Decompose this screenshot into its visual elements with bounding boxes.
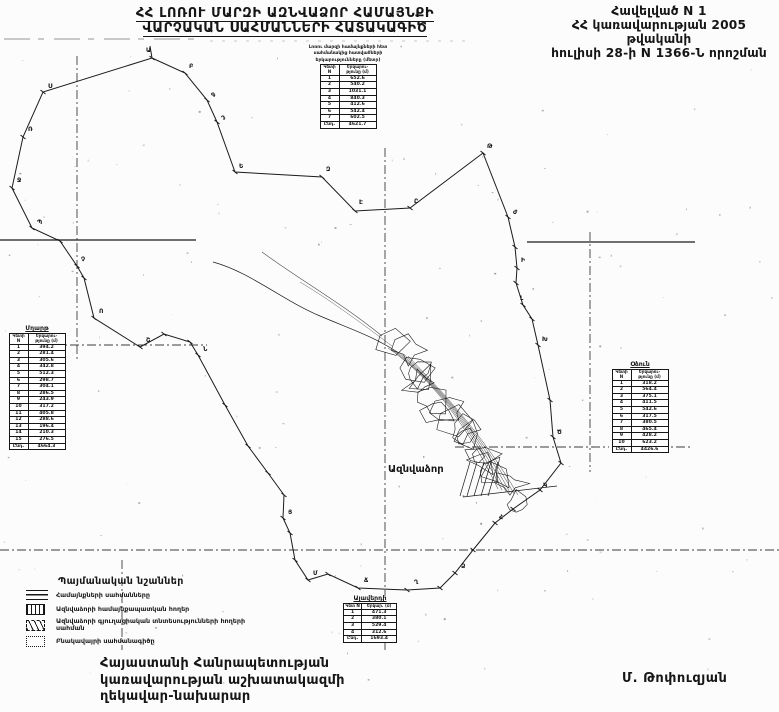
authority-line2: կառավարության աշխատակազմի [100, 673, 345, 690]
cell: 471.3 [362, 609, 397, 616]
administrative-boundary [10, 46, 564, 592]
table-row: 4312.6 [344, 629, 397, 636]
cell: Ընդ. [612, 446, 631, 453]
table-row: 5512.3 [9, 370, 65, 377]
boundary-point-label: Լ [520, 295, 524, 302]
table-row: 31031.1 [320, 89, 376, 96]
table-total-row: Ընդ.4426.6 [612, 446, 668, 453]
cell: 5 [9, 370, 28, 377]
legend-item: Համայնքների սահմանները [26, 590, 256, 600]
border-length-table-bottom: ԱլավերդիԿետ NԵրկար. (մ)1471.32380.13529.… [343, 596, 397, 643]
legend-item: Ազնվաձորի գյուղացիական տնտեսությունների … [26, 618, 256, 632]
cell: 11 [9, 410, 28, 417]
cell: Ընդ. [9, 443, 28, 450]
cell: 10 [9, 403, 28, 410]
border-length-table-left: ՄղարթԿետի NԵրկարու- թյունը (մ)1394.22281… [8, 326, 66, 450]
cell: 304.1 [28, 384, 65, 391]
dotted-box-icon [26, 636, 50, 647]
legend-item: Բնակավայրի սահմանագիծը [26, 636, 256, 647]
cell: 8 [612, 426, 631, 433]
table-row: 4342.8 [9, 364, 65, 371]
cell: 8 [9, 390, 28, 397]
cell: 4 [320, 95, 339, 102]
boundary-point-label: Դ [221, 115, 226, 122]
cell: 1 [344, 609, 362, 616]
legend-item: Ազնվաձորի համայնքապատկան հողեր [26, 604, 256, 615]
cell: 318.2 [631, 380, 668, 387]
boundary-point-label: Է [359, 199, 363, 206]
cell: 9 [612, 433, 631, 440]
table-row: 2540.2 [320, 82, 376, 89]
column-header: Երկարու- թյունը (մ) [339, 65, 376, 76]
cell: 4664.3 [28, 443, 65, 450]
border-length-table-right: ՕձունԿետի NԵրկարու- թյունը (մ)1318.22564… [609, 362, 671, 453]
cell: 5 [612, 406, 631, 413]
table-header-row: Կետի NԵրկարու- թյունը (մ) [320, 65, 376, 76]
cell: 542.4 [339, 108, 376, 115]
cell: 394.2 [28, 344, 65, 351]
table-row: 1652.6 [320, 75, 376, 82]
table-row: 12288.6 [9, 417, 65, 424]
map-title: ՀՀ ԼՈՌՈՒ ՄԱՐԶԻ ԱԶՆՎԱՁՈՐ ՀԱՄԱՅՆՔԻ ՎԱՐՉԱԿԱ… [70, 6, 500, 36]
cell: 2 [9, 351, 28, 358]
boundary-point-label: Ծ [557, 429, 562, 436]
boundary-point-label: Մ [313, 570, 318, 577]
table-row: 14210.3 [9, 430, 65, 437]
cell: 4426.6 [631, 446, 668, 453]
cell: 3 [320, 89, 339, 96]
table-row: 2281.4 [9, 351, 65, 358]
table-row: 10623.2 [612, 439, 668, 446]
cell: 3 [612, 393, 631, 400]
table-row: 2564.4 [612, 387, 668, 394]
cell: 6 [612, 413, 631, 420]
boundary-point-label: Ժ [513, 209, 518, 216]
table-row: 7602.5 [320, 115, 376, 122]
legend-item-label: Համայնքների սահմանները [56, 592, 150, 599]
cell: 1 [320, 75, 339, 82]
legend-item-label: Բնակավայրի սահմանագիծը [56, 638, 155, 645]
table-row: 5542.6 [612, 406, 668, 413]
cell: 4 [612, 400, 631, 407]
cell: 243.9 [28, 397, 65, 404]
map-title-line2: ՎԱՐՉԱԿԱՆ ՍԱՀՄԱՆՆԵՐԻ ՀԱՏԱԿԱԳԻԾ [70, 21, 500, 36]
boundary-point-label: Ռ [28, 126, 33, 133]
boundary-point-label: Ձ [461, 563, 465, 570]
table-total-row: Ընդ.4621.7 [320, 121, 376, 128]
cell: 652.6 [339, 75, 376, 82]
cell: 411.5 [631, 400, 668, 407]
table-total-row: Ընդ.1693.4 [344, 636, 397, 643]
table-row: 3529.4 [344, 622, 397, 629]
table-header-row: Կետի NԵրկարու- թյունը (մ) [9, 334, 65, 345]
authority-line1: Հայաստանի Հանրապետության [100, 656, 345, 673]
boundary-point-label: Ո [99, 308, 103, 315]
table-row: 9428.2 [612, 433, 668, 440]
column-header: Երկարու- թյունը (մ) [631, 370, 668, 381]
cell: 305.6 [28, 357, 65, 364]
cell: 12 [9, 417, 28, 424]
table-row: 8465.4 [612, 426, 668, 433]
column-header: Երկար. (մ) [362, 604, 397, 610]
cell: 465.4 [631, 426, 668, 433]
boundary-point-label: Բ [189, 63, 193, 70]
cell: 7 [320, 115, 339, 122]
cell: 317.2 [28, 403, 65, 410]
table-total-row: Ընդ.4664.3 [9, 443, 65, 450]
column-header: Կետ N [344, 604, 362, 610]
table-header-row: Կետ NԵրկար. (մ) [344, 604, 397, 610]
table-row: 4411.5 [612, 400, 668, 407]
table-title: Մղարթ [8, 326, 66, 332]
table-row: 4840.3 [320, 95, 376, 102]
table-caption-line: Լոռու մարզի համայնքների հետ [299, 45, 397, 50]
cell: 1693.4 [362, 636, 397, 643]
cell: Ընդ. [320, 121, 339, 128]
cell: 2 [612, 387, 631, 394]
scanned-map-page: ԱԲԳԴԵԶԷԸԹԺԻԼԽԾԿՀՁՂՃՄՅՆՇՈՉՊՋՌՍ Ազնվաձոր Հ… [0, 0, 779, 712]
cell: 380.5 [631, 420, 668, 427]
map-title-line1: ՀՀ ԼՈՌՈՒ ՄԱՐԶԻ ԱԶՆՎԱՁՈՐ ՀԱՄԱՅՆՔԻ [70, 6, 500, 21]
cell: 529.4 [362, 622, 397, 629]
table-row: 10317.2 [9, 403, 65, 410]
cell: 412.6 [339, 102, 376, 109]
table-row: 5412.6 [320, 102, 376, 109]
cell: 542.6 [631, 406, 668, 413]
boundary-point-label: Ե [239, 163, 243, 170]
length-table: Կետ NԵրկար. (մ)1471.32380.13529.44312.6Ը… [343, 603, 397, 643]
table-caption-line: երկարությունները (մետր) [299, 58, 397, 63]
triple-line-icon [26, 590, 50, 600]
cell: 6 [9, 377, 28, 384]
border-length-table-top: Լոռու մարզի համայնքների հետսահմանակից հա… [299, 45, 397, 129]
signing-authority: Հայաստանի Հանրապետության կառավարության ա… [100, 656, 345, 706]
boundary-point-labels: ԱԲԳԴԵԶԷԸԹԺԻԼԽԾԿՀՁՂՃՄՅՆՇՈՉՊՋՌՍ [17, 47, 562, 586]
cell: 1031.1 [339, 89, 376, 96]
cell: 1 [612, 380, 631, 387]
table-row: 1318.2 [612, 380, 668, 387]
boundary-point-label: Ն [203, 346, 208, 353]
table-header-row: Կետի NԵրկարու- թյունը (մ) [612, 370, 668, 381]
legend-item-label: Ազնվաձորի գյուղացիական տնտեսությունների … [56, 618, 256, 632]
boundary-point-label: Կ [543, 482, 547, 489]
table-row: 1471.3 [344, 609, 397, 616]
cell: 6 [320, 108, 339, 115]
boundary-point-label: Ճ [364, 577, 368, 584]
cell: 2 [320, 82, 339, 89]
length-table: Կետի NԵրկարու- թյունը (մ)1394.22281.4330… [9, 333, 66, 450]
cell: 540.2 [339, 82, 376, 89]
cell: 9 [9, 397, 28, 404]
cell: 375.1 [631, 393, 668, 400]
table-row: 13196.4 [9, 423, 65, 430]
legend-item-label: Ազնվաձորի համայնքապատկան հողեր [56, 606, 189, 613]
cell: 4 [9, 364, 28, 371]
table-title: Օձուն [609, 362, 671, 368]
cell: 7 [612, 420, 631, 427]
boundary-point-label: Ա [146, 47, 151, 54]
cell: 380.1 [362, 616, 397, 623]
cell: 405.8 [28, 410, 65, 417]
table-title: Ալավերդի [343, 596, 397, 602]
table-row: 1394.2 [9, 344, 65, 351]
table-row: 6298.7 [9, 377, 65, 384]
legend-items: Համայնքների սահմաններըԱզնվաձորի համայնքա… [26, 590, 256, 647]
cell: Ընդ. [344, 636, 362, 643]
cell: 1 [9, 344, 28, 351]
boundary-point-label: Ջ [17, 177, 21, 184]
boundary-point-label: Ը [414, 198, 418, 205]
signer-name: Մ. Թոփուզյան [622, 671, 727, 686]
cell: 15 [9, 436, 28, 443]
authority-line3: ղեկավար-նախարար [100, 689, 345, 706]
cell: 7 [9, 384, 28, 391]
table-row: 3375.1 [612, 393, 668, 400]
cell: 317.5 [631, 413, 668, 420]
boundary-point-label: Զ [326, 166, 330, 173]
boundary-point-label: Ղ [414, 579, 419, 586]
boundary-point-label: Պ [37, 219, 42, 226]
village-name-label: Ազնվաձոր [388, 464, 444, 475]
cell: 4 [344, 629, 362, 636]
length-table: Կետի NԵրկարու- թյունը (մ)1318.22564.4337… [612, 369, 669, 453]
boundary-point-label: Ի [521, 257, 525, 264]
table-row: 3305.6 [9, 357, 65, 364]
cell: 298.7 [28, 377, 65, 384]
hatched-box-icon [26, 604, 50, 615]
village-parcel-cluster [376, 328, 530, 512]
cell: 4621.7 [339, 121, 376, 128]
column-header: Երկարու- թյունը (մ) [28, 334, 65, 345]
table-row: 9243.9 [9, 397, 65, 404]
table-row: 6317.5 [612, 413, 668, 420]
boundary-point-label: Թ [487, 143, 493, 150]
table-row: 11405.8 [9, 410, 65, 417]
boundary-point-label: Յ [288, 509, 292, 516]
cell: 3 [9, 357, 28, 364]
cell: 342.8 [28, 364, 65, 371]
cell: 288.6 [28, 417, 65, 424]
boundary-point-label: Ս [48, 83, 53, 90]
annex-line1: Հավելված N 1 [540, 4, 778, 18]
annex-line3: հուլիսի 28-ի N 1366-Ն որոշման [540, 46, 778, 60]
marked-box-icon [26, 620, 50, 631]
annex-note: Հավելված N 1 ՀՀ կառավարության 2005 թվակա… [540, 4, 778, 60]
table-row: 15276.5 [9, 436, 65, 443]
table-row: 6542.4 [320, 108, 376, 115]
column-header: Կետի N [612, 370, 631, 381]
legend-title: Պայմանական նշաններ [58, 576, 256, 587]
length-table: Կետի NԵրկարու- թյունը (մ)1652.62540.2310… [320, 64, 377, 128]
table-caption-line: սահմանակից հատվածների [299, 51, 397, 56]
cell: 428.2 [631, 433, 668, 440]
cell: 210.3 [28, 430, 65, 437]
cell: 512.3 [28, 370, 65, 377]
cell: 281.4 [28, 351, 65, 358]
cell: 286.5 [28, 390, 65, 397]
cell: 623.2 [631, 439, 668, 446]
table-row: 7380.5 [612, 420, 668, 427]
legend: Պայմանական նշաններ Համայնքների սահմաններ… [26, 576, 256, 650]
boundary-point-label: Հ [499, 514, 503, 521]
cell: 3 [344, 622, 362, 629]
cell: 2 [344, 616, 362, 623]
cell: 276.5 [28, 436, 65, 443]
boundary-point-label: Խ [542, 336, 548, 343]
column-header: Կետի N [320, 65, 339, 76]
table-row: 8286.5 [9, 390, 65, 397]
boundary-point-label: Գ [211, 92, 216, 99]
cell: 5 [320, 102, 339, 109]
table-row: 7304.1 [9, 384, 65, 391]
table-row: 2380.1 [344, 616, 397, 623]
cell: 10 [612, 439, 631, 446]
cell: 13 [9, 423, 28, 430]
cell: 14 [9, 430, 28, 437]
coordinate-gridlines [0, 56, 779, 652]
annex-line2: ՀՀ կառավարության 2005 թվականի [540, 18, 778, 46]
cell: 602.5 [339, 115, 376, 122]
boundary-point-label: Շ [146, 337, 150, 344]
cell: 312.6 [362, 629, 397, 636]
cell: 196.4 [28, 423, 65, 430]
boundary-point-label: Չ [81, 256, 85, 263]
cell: 840.3 [339, 95, 376, 102]
cell: 564.4 [631, 387, 668, 394]
column-header: Կետի N [9, 334, 28, 345]
